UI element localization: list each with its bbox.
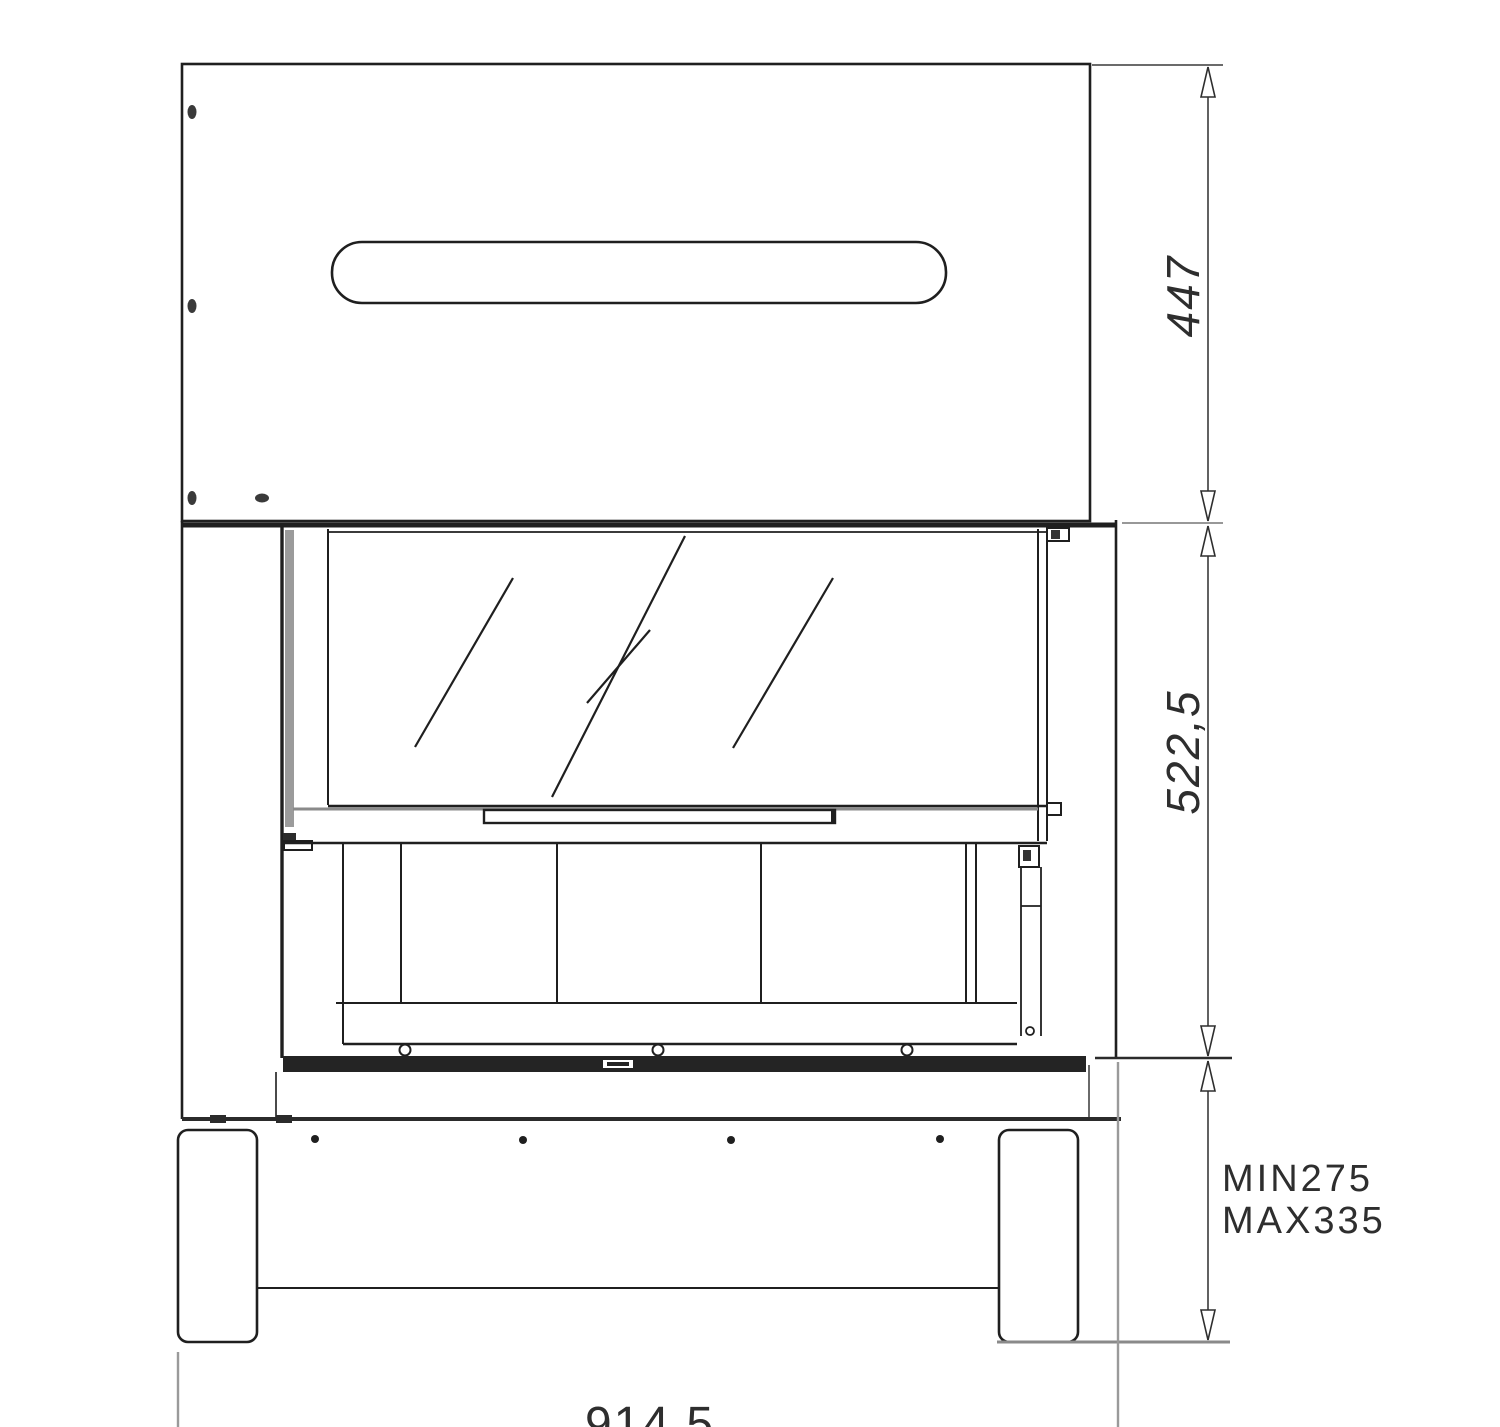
base-strip-slot-insert xyxy=(607,1062,629,1066)
dimension-upper-section: 447 xyxy=(1157,67,1215,521)
hearth-screw-icon xyxy=(400,1045,411,1056)
latch-pin xyxy=(1023,850,1031,861)
rivet-icon xyxy=(188,491,197,505)
latch-screw-icon xyxy=(1026,1027,1034,1035)
base-strip xyxy=(283,1056,1086,1072)
dimension-label-min275: MIN275 xyxy=(1222,1158,1373,1200)
dimension-label-max335: MAX335 xyxy=(1222,1200,1386,1242)
plinth-joint-mark xyxy=(210,1115,226,1123)
rivet-icon xyxy=(255,494,269,503)
glass-reflection xyxy=(415,578,513,747)
left-leg xyxy=(178,1130,257,1342)
door-right-tab xyxy=(1047,803,1061,815)
plinth xyxy=(178,1115,1121,1342)
dimension-plinth-section: MIN275 MAX335 xyxy=(1201,1061,1386,1340)
firebox-section xyxy=(182,520,1116,1119)
rivet-icon xyxy=(188,299,197,313)
arrowhead-down-icon xyxy=(1201,491,1215,521)
arrowhead-down-icon xyxy=(1201,1310,1215,1340)
dimension-door-section: 522,5 xyxy=(1157,526,1215,1056)
arrowhead-up-icon xyxy=(1201,1061,1215,1091)
firebox-base-strip xyxy=(276,1056,1089,1119)
door-lift-channel xyxy=(285,530,294,827)
ventilation-slot xyxy=(332,242,946,303)
plinth-screw-icon xyxy=(519,1136,527,1144)
plinth-screw-icon xyxy=(311,1135,319,1143)
door-handle xyxy=(484,810,835,823)
plinth-screw-icon xyxy=(727,1136,735,1144)
plinth-screw-icon xyxy=(936,1135,944,1143)
dimension-label-522-5: 522,5 xyxy=(1157,689,1209,814)
dimension-label-914-5: 914,5 xyxy=(585,1398,715,1427)
glass-door xyxy=(293,528,1069,841)
arrowhead-down-icon xyxy=(1201,1026,1215,1056)
firebox-interior xyxy=(336,843,1041,1056)
glass-reflection xyxy=(587,630,650,703)
arrowhead-up-icon xyxy=(1201,526,1215,556)
right-leg xyxy=(999,1130,1078,1342)
arrowhead-up-icon xyxy=(1201,67,1215,97)
glass-reflection xyxy=(733,578,833,748)
hearth-screw-icon xyxy=(902,1045,913,1056)
technical-drawing: 447 522,5 MIN275 MAX335 914,5 xyxy=(0,0,1500,1427)
plinth-joint-mark xyxy=(276,1115,292,1123)
dimension-label-447: 447 xyxy=(1157,255,1209,338)
hinge-pin xyxy=(1051,530,1060,539)
hearth-screw-icon xyxy=(653,1045,664,1056)
upper-cabinet xyxy=(182,64,1090,521)
drawing-svg: 447 522,5 MIN275 MAX335 914,5 xyxy=(0,0,1500,1427)
rivet-icon xyxy=(188,105,197,119)
